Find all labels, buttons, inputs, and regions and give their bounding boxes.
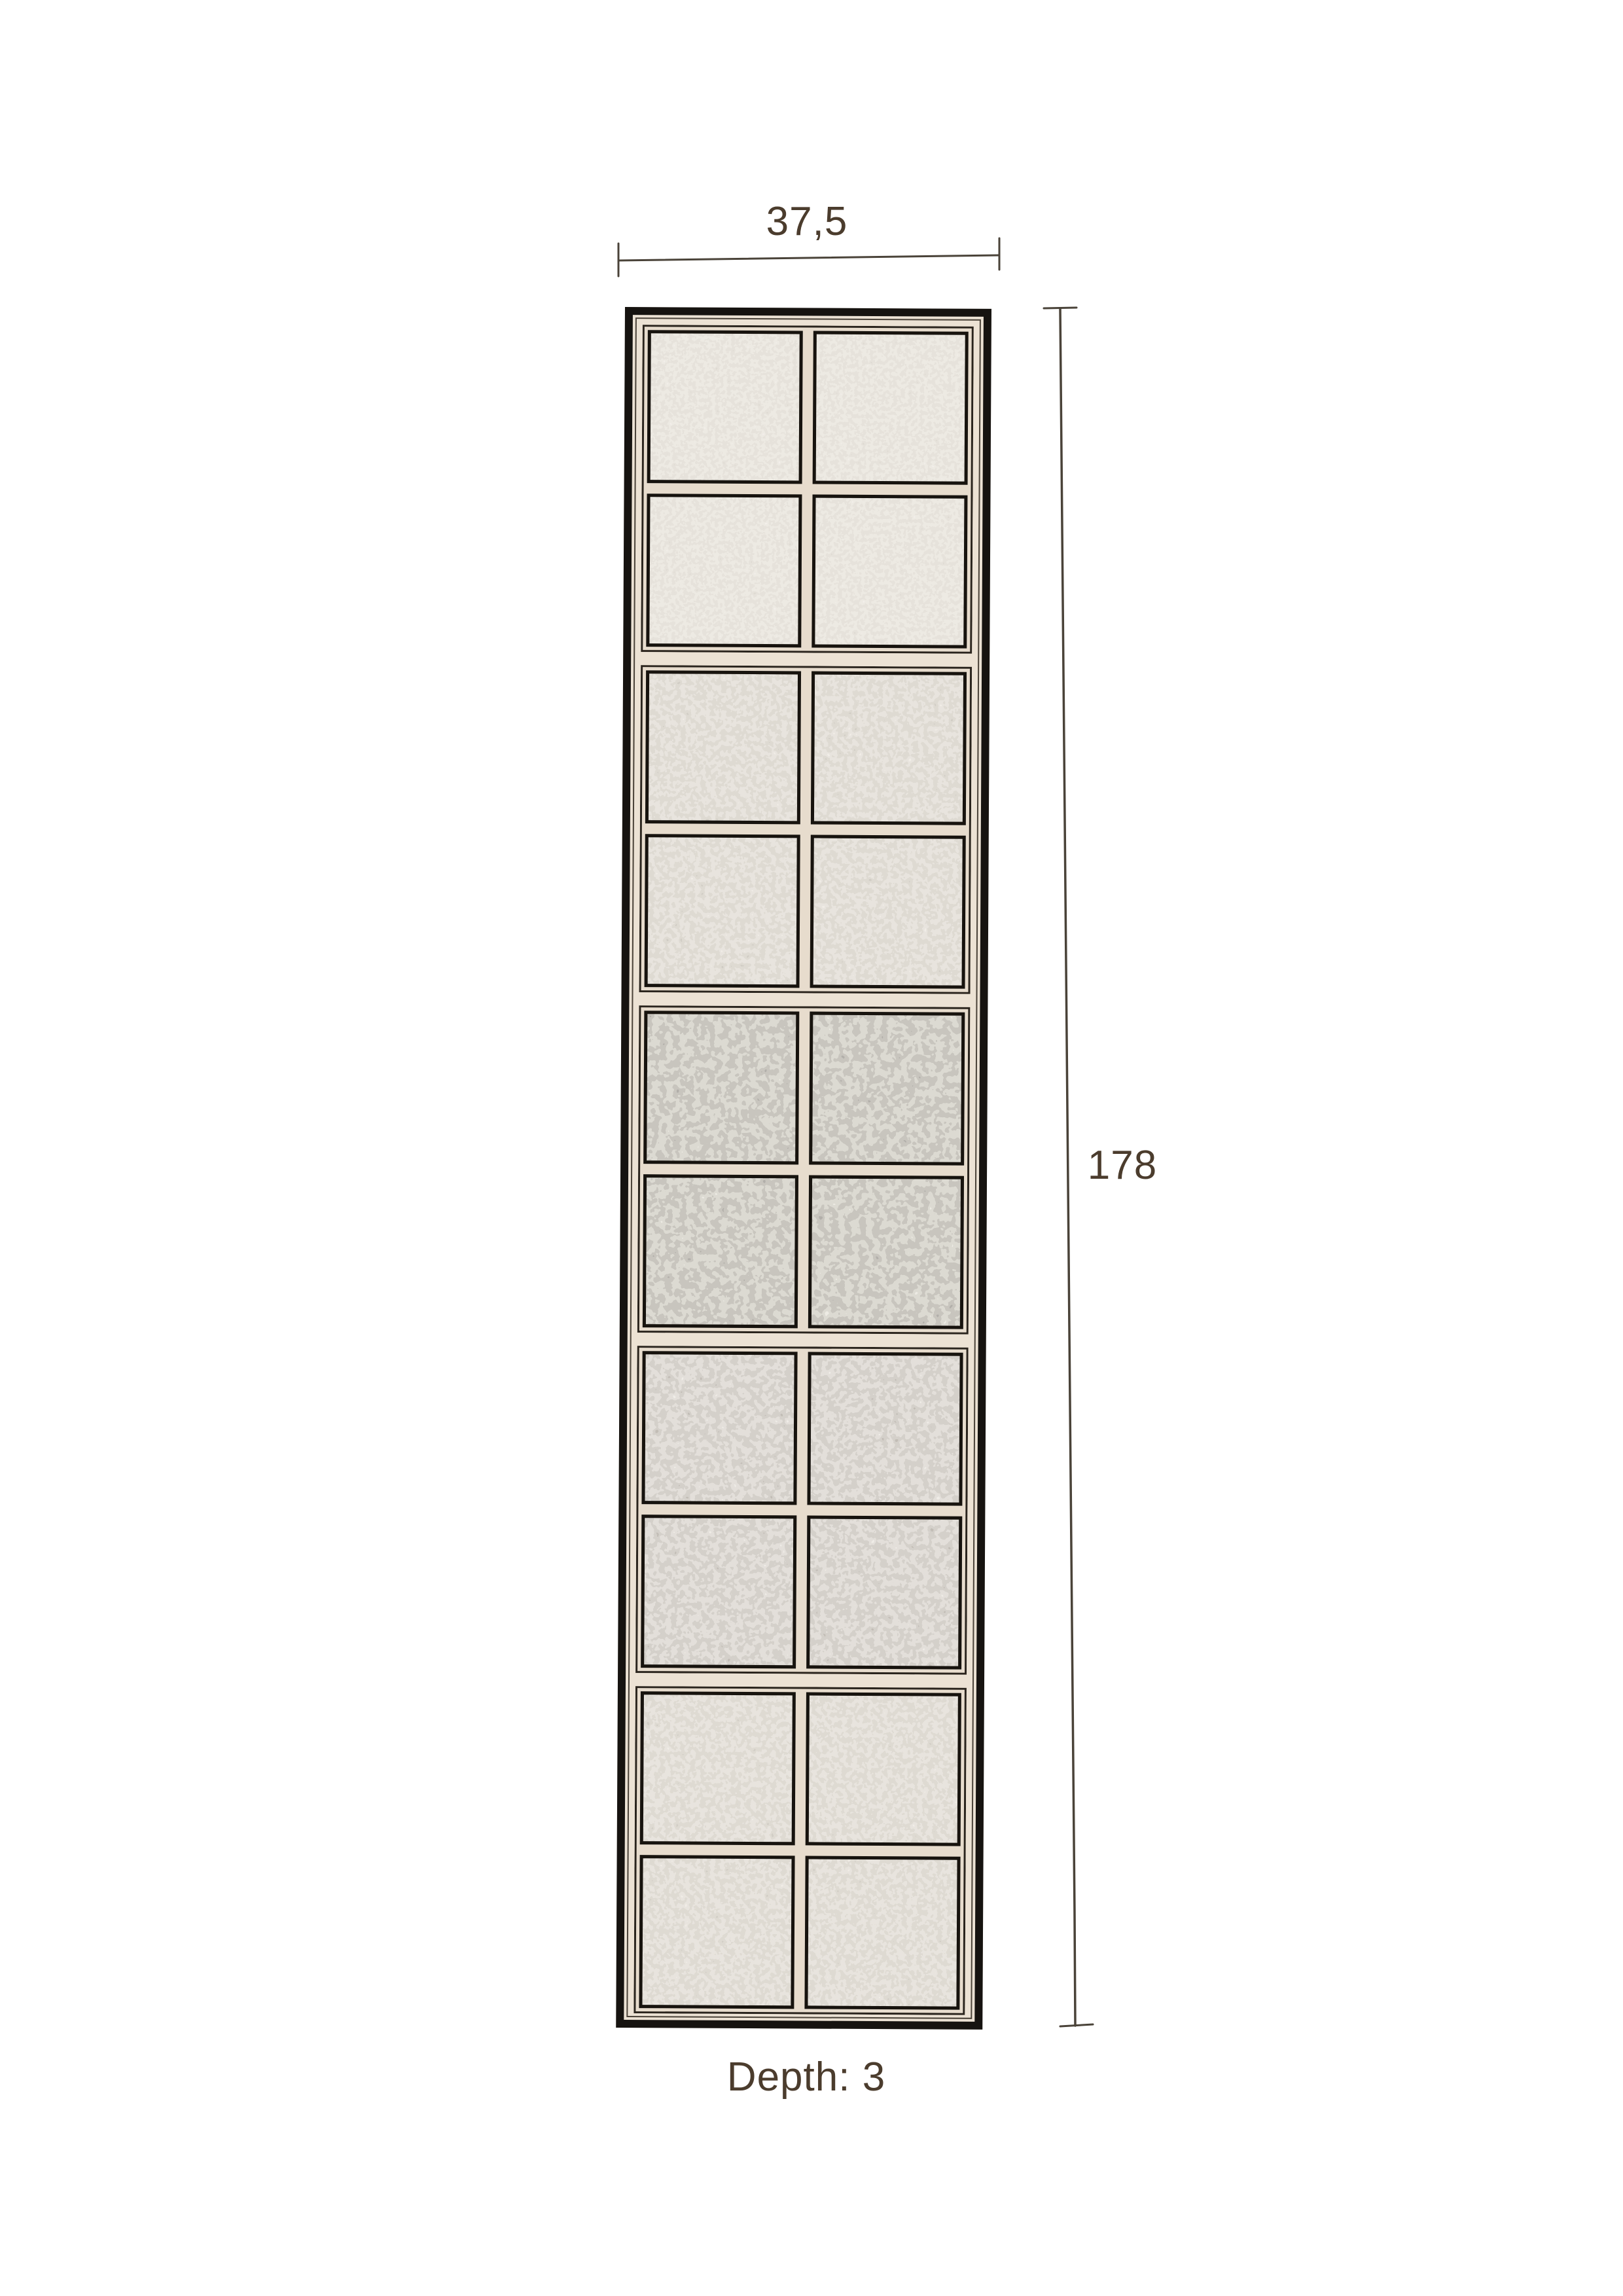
height-dimension-label: 178 bbox=[1073, 1145, 1171, 1186]
depth-dimension-label: Depth: 3 bbox=[675, 2057, 937, 2098]
product-dimension-diagram: 37,5 178 Depth: 3 bbox=[0, 0, 1623, 2296]
block-group-5 bbox=[633, 1686, 967, 2015]
block-group-3 bbox=[637, 1005, 971, 1335]
height-dimension-tick-bottom bbox=[1060, 2024, 1093, 2026]
width-dimension-line bbox=[618, 255, 999, 260]
glass-block-group bbox=[639, 665, 972, 994]
height-dimension-tick-top bbox=[1044, 308, 1077, 308]
glass-block-group bbox=[635, 1346, 969, 1675]
block-group-4 bbox=[635, 1346, 969, 1675]
width-dimension-label: 37,5 bbox=[709, 202, 905, 242]
block-group-1 bbox=[641, 325, 974, 654]
glass-block-group bbox=[637, 1005, 971, 1335]
glass-block-group bbox=[633, 1686, 967, 2015]
glass-block-group bbox=[641, 325, 974, 654]
block-group-2 bbox=[639, 665, 972, 994]
panel-inner-frame bbox=[626, 317, 981, 2019]
glass-block-panel bbox=[616, 307, 991, 2030]
